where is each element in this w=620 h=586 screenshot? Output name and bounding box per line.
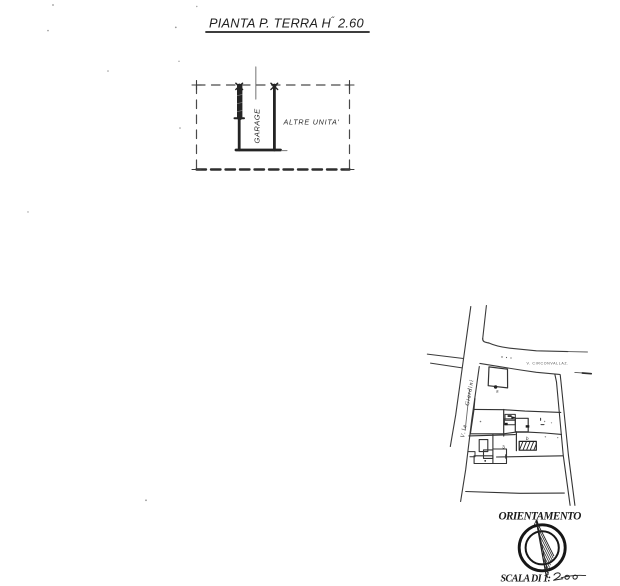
svg-text:V.le: V.le: [460, 424, 468, 438]
svg-text:b: b: [526, 436, 529, 441]
svg-text:V. CIRCONVALLAZ.: V. CIRCONVALLAZ.: [527, 362, 569, 366]
svg-text:ALTRE UNITA': ALTRE UNITA': [283, 118, 341, 127]
svg-text:SCALA DI 1:: SCALA DI 1:: [501, 574, 552, 585]
svg-text:PIANTA P. TERRA H˝ 2.60: PIANTA P. TERRA H˝ 2.60: [209, 16, 366, 31]
svg-text:GARAGE: GARAGE: [252, 108, 261, 144]
svg-text:ORIENTAMENTO: ORIENTAMENTO: [499, 511, 583, 523]
svg-text:a: a: [496, 389, 499, 394]
